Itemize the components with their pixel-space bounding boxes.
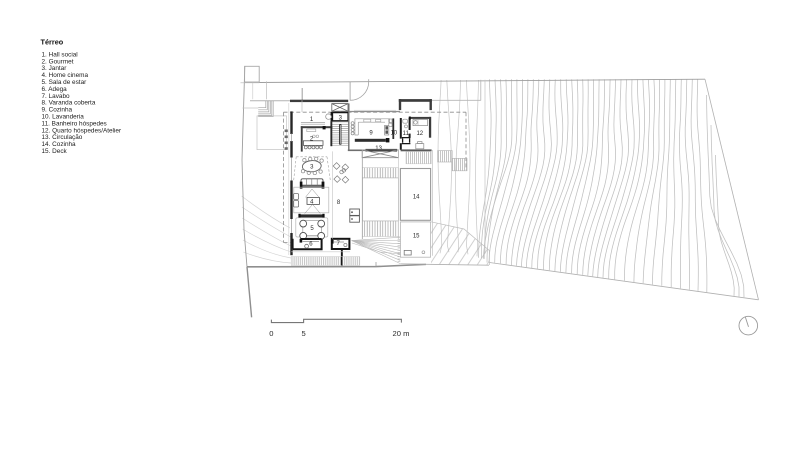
- svg-text:20 m: 20 m: [393, 329, 410, 338]
- svg-text:10: 10: [390, 131, 397, 137]
- svg-text:14: 14: [413, 194, 420, 200]
- svg-text:5: 5: [301, 329, 305, 338]
- svg-text:0: 0: [269, 329, 273, 338]
- svg-text:11: 11: [403, 131, 410, 137]
- svg-text:Térreo: Térreo: [41, 38, 64, 47]
- svg-text:15. Deck: 15. Deck: [42, 148, 68, 155]
- svg-text:15: 15: [413, 233, 420, 239]
- svg-text:12: 12: [416, 131, 423, 137]
